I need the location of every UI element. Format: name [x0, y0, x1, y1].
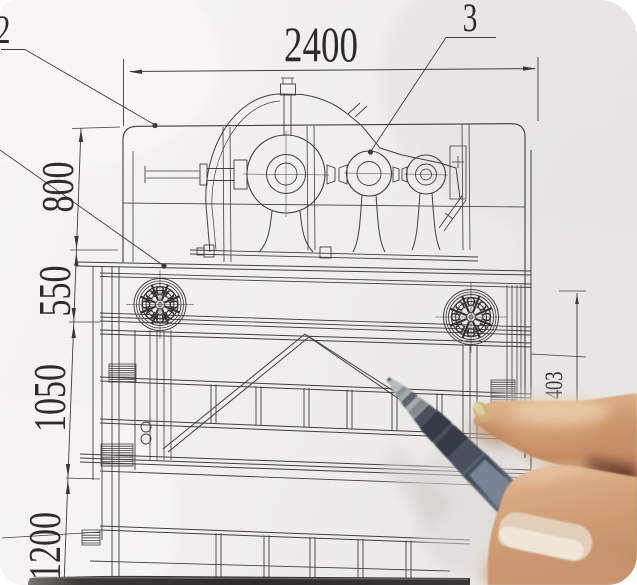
svg-text:1200: 1200 [19, 512, 70, 580]
svg-text:2400: 2400 [284, 17, 358, 73]
svg-text:2: 2 [0, 8, 10, 52]
svg-text:550: 550 [29, 265, 80, 316]
svg-text:800: 800 [32, 161, 83, 212]
svg-text:1050: 1050 [24, 364, 75, 432]
svg-text:3: 3 [463, 0, 478, 40]
